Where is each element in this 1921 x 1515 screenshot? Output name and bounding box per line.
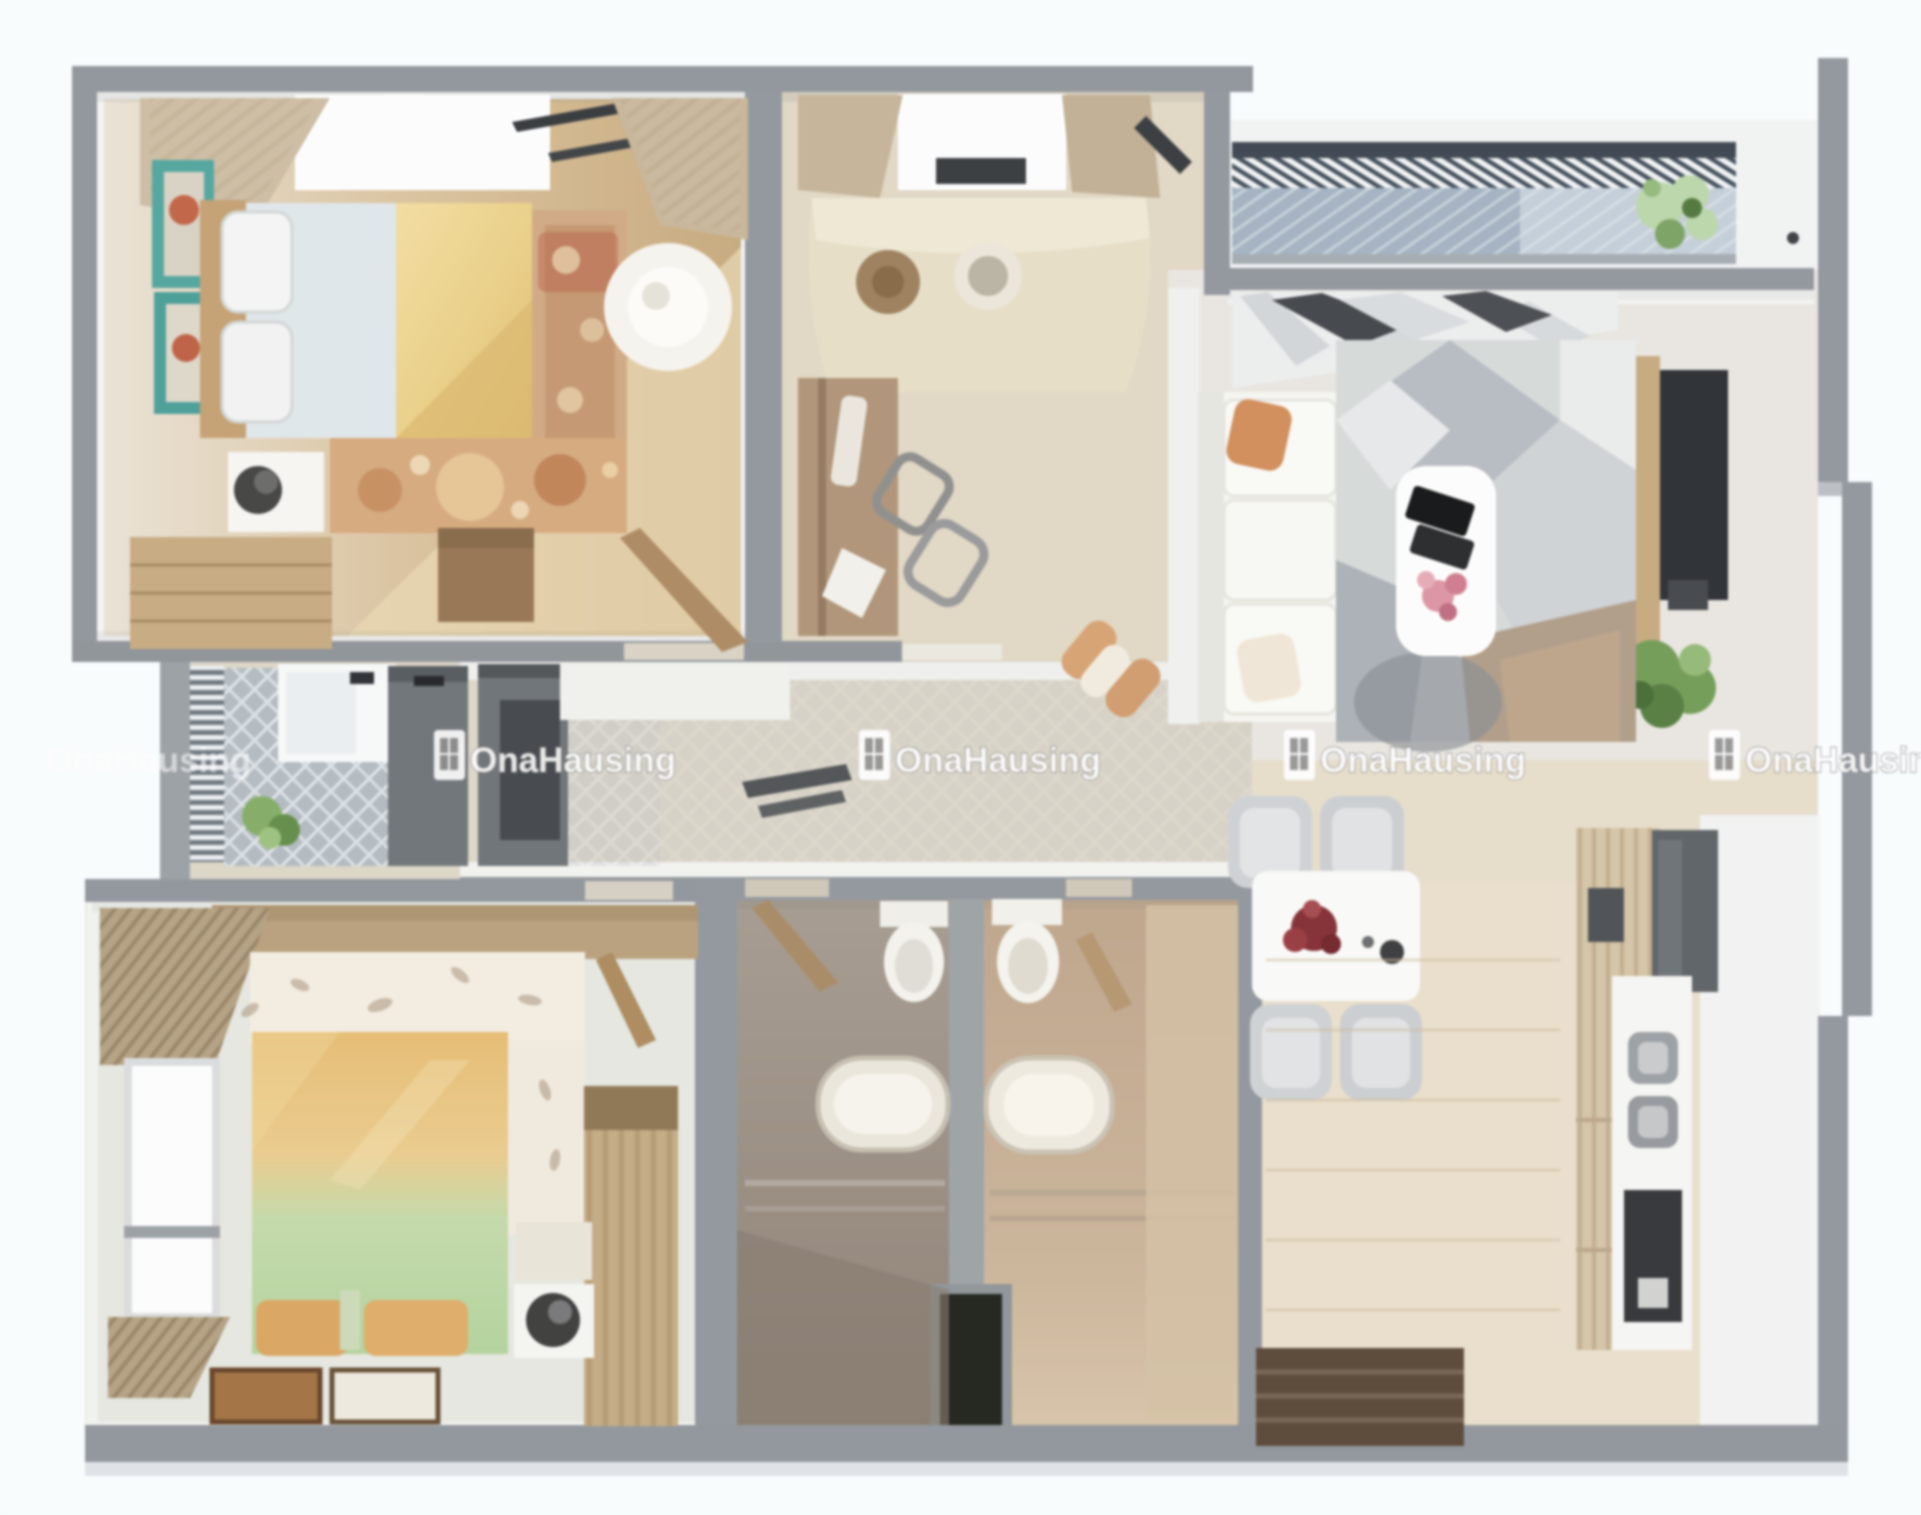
svg-text:OnaHausing: OnaHausing — [895, 741, 1101, 780]
svg-text:OnaHausing: OnaHausing — [470, 741, 676, 780]
svg-text:OnaHausing: OnaHausing — [1320, 741, 1526, 780]
svg-text:OnaHausing: OnaHausing — [45, 741, 251, 780]
svg-text:OnaHausing: OnaHausing — [1745, 741, 1921, 780]
